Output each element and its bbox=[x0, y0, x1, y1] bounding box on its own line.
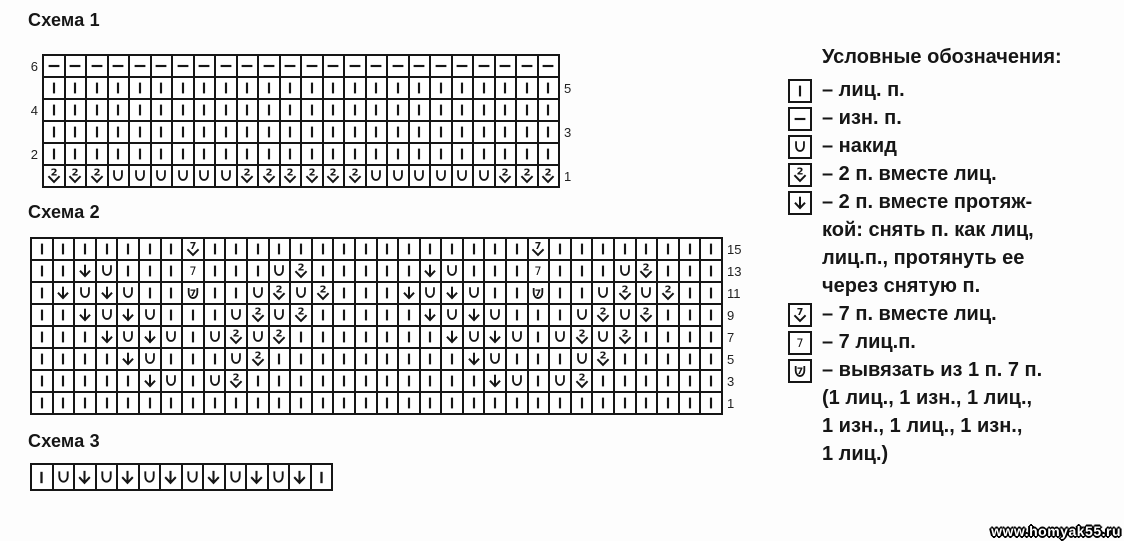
cell-k2tog: 2 bbox=[313, 283, 335, 305]
cell-knit bbox=[431, 144, 453, 166]
cell-ssk bbox=[140, 371, 162, 393]
cell-yarnover bbox=[183, 465, 205, 491]
knit-icon bbox=[206, 306, 224, 324]
cell-knit bbox=[680, 261, 702, 283]
cell-knit bbox=[496, 100, 518, 122]
knit-icon bbox=[152, 101, 170, 119]
k2tog-icon: 2 bbox=[539, 167, 557, 185]
cell-yarnover bbox=[550, 327, 572, 349]
cell-knit bbox=[281, 144, 303, 166]
ssk-symbol-box bbox=[788, 191, 812, 215]
chart-row bbox=[44, 56, 560, 78]
cell-knit bbox=[496, 144, 518, 166]
cell-yarnover bbox=[248, 283, 270, 305]
cell-yarnover bbox=[572, 349, 594, 371]
knit-icon bbox=[324, 101, 342, 119]
knit-icon bbox=[33, 372, 51, 390]
cell-ssk bbox=[421, 261, 443, 283]
yarnover-icon bbox=[249, 328, 267, 346]
cell-k2tog: 2 bbox=[324, 166, 346, 188]
yarnover-icon bbox=[195, 167, 213, 185]
yarnover-icon bbox=[443, 306, 461, 324]
cell-k2tog: 2 bbox=[87, 166, 109, 188]
cell-knit bbox=[550, 349, 572, 371]
cell-knit bbox=[313, 305, 335, 327]
cell-knit bbox=[388, 100, 410, 122]
knit-icon bbox=[378, 372, 396, 390]
knit-icon bbox=[162, 350, 180, 368]
cell-knit bbox=[637, 239, 659, 261]
cell-knit bbox=[378, 327, 400, 349]
cell-knit bbox=[118, 371, 140, 393]
cell-knit bbox=[226, 283, 248, 305]
knit-icon bbox=[54, 328, 72, 346]
knit-icon bbox=[421, 372, 439, 390]
cell-yarnover bbox=[421, 283, 443, 305]
cell-knit bbox=[421, 349, 443, 371]
knit-icon bbox=[88, 145, 106, 163]
purl-icon bbox=[195, 57, 213, 75]
knit-icon bbox=[616, 350, 634, 368]
knit-icon bbox=[195, 123, 213, 141]
knit-icon bbox=[496, 145, 514, 163]
yarnover-icon bbox=[508, 372, 526, 390]
knit-icon bbox=[54, 372, 72, 390]
knit-icon bbox=[335, 240, 353, 258]
yarnover-icon bbox=[270, 262, 288, 280]
cell-knit bbox=[291, 349, 313, 371]
k2tog-icon: 2 bbox=[66, 167, 84, 185]
cell-k2tog: 2 bbox=[637, 261, 659, 283]
row-number: 5 bbox=[564, 78, 571, 100]
knit-icon bbox=[551, 262, 569, 280]
cell-knit bbox=[442, 393, 464, 415]
knit-icon bbox=[162, 394, 180, 412]
row-number: 11 bbox=[727, 283, 741, 305]
knit-icon bbox=[539, 145, 557, 163]
cell-knit bbox=[572, 261, 594, 283]
cell-knit bbox=[66, 100, 88, 122]
cell-knit bbox=[324, 122, 346, 144]
purl-icon bbox=[131, 57, 149, 75]
cell-knit bbox=[356, 393, 378, 415]
knit-icon bbox=[573, 240, 591, 258]
cell-k2tog: 2 bbox=[658, 283, 680, 305]
cell-knit bbox=[680, 283, 702, 305]
chart-row: 7272 bbox=[32, 261, 723, 283]
cell-yarnover bbox=[291, 283, 313, 305]
knit-icon bbox=[637, 372, 655, 390]
knit-icon bbox=[346, 79, 364, 97]
ssk-icon bbox=[204, 468, 223, 487]
knit-icon bbox=[303, 101, 321, 119]
cell-k2tog: 2 bbox=[248, 305, 270, 327]
cell-yarnover bbox=[226, 465, 248, 491]
cell-knit bbox=[248, 393, 270, 415]
cell-yarnover bbox=[162, 327, 184, 349]
cell-knit bbox=[701, 349, 723, 371]
ssk-icon bbox=[290, 468, 309, 487]
cell-yarnover bbox=[453, 166, 475, 188]
cell-ssk bbox=[118, 349, 140, 371]
cell-yarnover bbox=[367, 166, 389, 188]
cell-k2tog: 2 bbox=[44, 166, 66, 188]
cell-knit bbox=[539, 144, 561, 166]
cell-knit bbox=[334, 349, 356, 371]
knit-icon bbox=[539, 123, 557, 141]
cell-knit bbox=[550, 305, 572, 327]
k2tog-icon: 2 bbox=[249, 306, 267, 324]
purl-icon bbox=[281, 57, 299, 75]
cell-ssk bbox=[97, 283, 119, 305]
cell-knit bbox=[399, 371, 421, 393]
cell-knit bbox=[378, 239, 400, 261]
cell-purl bbox=[431, 56, 453, 78]
knit-icon bbox=[378, 262, 396, 280]
knit-icon bbox=[410, 101, 428, 119]
row-number: 15 bbox=[727, 239, 741, 261]
cell-k2tog: 2 bbox=[615, 283, 637, 305]
legend-items: – лиц. п.– изн. п.– накид2– 2 п. вместе … bbox=[786, 76, 1124, 468]
row-numbers-left: 642 bbox=[24, 56, 38, 188]
cell-yarnover bbox=[130, 166, 152, 188]
knit-icon bbox=[594, 262, 612, 280]
purl-icon bbox=[152, 57, 170, 75]
cell-ssk bbox=[442, 327, 464, 349]
cell-yarnover bbox=[75, 283, 97, 305]
cell-purl bbox=[388, 56, 410, 78]
knit-icon bbox=[421, 394, 439, 412]
cell-yarnover bbox=[410, 166, 432, 188]
knit-icon bbox=[357, 284, 375, 302]
chart-row bbox=[44, 78, 560, 100]
cell-knit bbox=[205, 239, 227, 261]
k2tog-icon: 2 bbox=[518, 167, 536, 185]
knit-icon bbox=[335, 262, 353, 280]
knit-icon bbox=[141, 240, 159, 258]
purl-icon bbox=[389, 57, 407, 75]
ssk-icon bbox=[141, 328, 159, 346]
svg-text:2: 2 bbox=[545, 168, 552, 179]
cell-knit bbox=[517, 122, 539, 144]
legend-item-line: – накид bbox=[822, 132, 1124, 160]
cell-knit bbox=[680, 305, 702, 327]
cell-knit bbox=[313, 393, 335, 415]
cell-knit bbox=[474, 122, 496, 144]
cell-knit bbox=[259, 122, 281, 144]
cell-yarnover bbox=[615, 261, 637, 283]
knit-icon bbox=[453, 79, 471, 97]
knit-icon bbox=[475, 79, 493, 97]
row-number bbox=[24, 122, 38, 144]
k2tog-icon: 2 bbox=[496, 167, 514, 185]
cell-knit bbox=[87, 122, 109, 144]
knit-icon bbox=[131, 79, 149, 97]
legend-item-line: – изн. п. bbox=[822, 104, 1124, 132]
chart-row: 22 bbox=[32, 349, 723, 371]
knit-icon bbox=[324, 79, 342, 97]
cell-k2tog: 2 bbox=[281, 166, 303, 188]
knit-icon bbox=[432, 79, 450, 97]
cell-purl bbox=[216, 56, 238, 78]
k2tog-icon: 2 bbox=[637, 262, 655, 280]
row-number: 13 bbox=[727, 261, 741, 283]
cell-ssk bbox=[442, 283, 464, 305]
cell-k2tog: 2 bbox=[66, 166, 88, 188]
cell-knit bbox=[205, 349, 227, 371]
cell-knit bbox=[130, 144, 152, 166]
schema3-title: Схема 3 bbox=[28, 431, 100, 452]
knit-icon bbox=[76, 394, 94, 412]
cell-knit bbox=[195, 122, 217, 144]
cell-knit bbox=[658, 305, 680, 327]
cell-knit bbox=[162, 283, 184, 305]
cell-knit bbox=[226, 261, 248, 283]
legend-item: 7– 7 п. вместе лиц. bbox=[786, 300, 1124, 328]
cell-purl bbox=[367, 56, 389, 78]
cell-knit bbox=[378, 393, 400, 415]
ssk-icon bbox=[400, 284, 418, 302]
knit-icon bbox=[539, 101, 557, 119]
cell-yarnover bbox=[97, 465, 119, 491]
chart-row: 2222 bbox=[32, 305, 723, 327]
make7-icon: 7 bbox=[791, 362, 809, 380]
yarnover-icon bbox=[206, 372, 224, 390]
cell-k2tog: 2 bbox=[539, 166, 561, 188]
knit-icon bbox=[238, 123, 256, 141]
knit7-icon: 7 bbox=[529, 262, 547, 280]
cell-yarnover bbox=[431, 166, 453, 188]
knit-icon bbox=[109, 123, 127, 141]
cell-yarnover bbox=[109, 166, 131, 188]
svg-text:2: 2 bbox=[502, 168, 509, 179]
knit-icon bbox=[594, 372, 612, 390]
knit-icon bbox=[465, 372, 483, 390]
knit-icon bbox=[486, 262, 504, 280]
cell-knit bbox=[130, 100, 152, 122]
knit-icon bbox=[410, 79, 428, 97]
k2tog-icon: 2 bbox=[303, 167, 321, 185]
cell-knit bbox=[44, 78, 66, 100]
knit7-icon: 7 bbox=[791, 334, 809, 352]
cell-knit bbox=[378, 371, 400, 393]
cell-yarnover bbox=[637, 283, 659, 305]
knit-icon bbox=[270, 372, 288, 390]
cell-knit bbox=[109, 78, 131, 100]
knit-icon bbox=[54, 306, 72, 324]
yarnover-icon bbox=[292, 284, 310, 302]
cell-knit bbox=[464, 371, 486, 393]
knit-icon bbox=[54, 262, 72, 280]
cell-knit bbox=[226, 393, 248, 415]
cell-k2tog: 2 bbox=[593, 305, 615, 327]
yarnover-icon bbox=[465, 284, 483, 302]
cell-knit bbox=[658, 239, 680, 261]
cell-knit bbox=[334, 239, 356, 261]
knit-icon bbox=[475, 101, 493, 119]
knit-icon bbox=[453, 145, 471, 163]
cell-knit bbox=[109, 100, 131, 122]
k2tog-icon: 2 bbox=[270, 284, 288, 302]
cell-ssk bbox=[464, 349, 486, 371]
knit-icon bbox=[637, 328, 655, 346]
yarnover-icon bbox=[226, 468, 245, 487]
cell-k7tog: 7 bbox=[529, 239, 551, 261]
knit-icon bbox=[227, 240, 245, 258]
knit7-icon: 7 bbox=[184, 262, 202, 280]
chart-row bbox=[32, 465, 333, 491]
cell-knit bbox=[680, 393, 702, 415]
cell-ssk bbox=[485, 327, 507, 349]
knit-icon bbox=[400, 394, 418, 412]
knit-icon bbox=[681, 284, 699, 302]
knit-icon bbox=[238, 79, 256, 97]
knit-icon bbox=[184, 306, 202, 324]
ssk-icon bbox=[421, 306, 439, 324]
k7tog-symbol-box: 7 bbox=[788, 303, 812, 327]
cell-ssk bbox=[118, 305, 140, 327]
ssk-icon bbox=[76, 306, 94, 324]
yarnover-icon bbox=[119, 284, 137, 302]
purl-icon bbox=[367, 57, 385, 75]
schema2-chart: 77727272272222222222222215131197531 bbox=[30, 237, 741, 415]
knit-icon bbox=[33, 328, 51, 346]
cell-k2tog: 2 bbox=[270, 327, 292, 349]
knit-icon bbox=[335, 328, 353, 346]
watermark-url: www.homyak55.ru bbox=[991, 523, 1121, 539]
knit-icon bbox=[109, 145, 127, 163]
knit-icon bbox=[281, 79, 299, 97]
purl-icon bbox=[518, 57, 536, 75]
knit-icon bbox=[303, 145, 321, 163]
cell-knit bbox=[474, 100, 496, 122]
row-number bbox=[24, 78, 38, 100]
knit-icon bbox=[378, 240, 396, 258]
yarnover-icon bbox=[410, 167, 428, 185]
cell-knit bbox=[32, 239, 54, 261]
cell-knit bbox=[183, 305, 205, 327]
k2tog-icon: 2 bbox=[88, 167, 106, 185]
yarnover-icon bbox=[270, 306, 288, 324]
knit-icon bbox=[314, 328, 332, 346]
cell-knit bbox=[658, 327, 680, 349]
cell-knit bbox=[162, 305, 184, 327]
yarnover-icon bbox=[162, 328, 180, 346]
cell-ssk bbox=[421, 305, 443, 327]
cell-knit bbox=[529, 371, 551, 393]
knit-icon bbox=[324, 145, 342, 163]
cell-knit bbox=[313, 239, 335, 261]
knit-icon bbox=[45, 101, 63, 119]
knit-icon bbox=[378, 328, 396, 346]
cell-knit bbox=[270, 239, 292, 261]
cell-knit bbox=[162, 349, 184, 371]
cell-knit bbox=[334, 327, 356, 349]
row-number bbox=[564, 56, 571, 78]
cell-knit bbox=[226, 239, 248, 261]
knit-icon bbox=[131, 101, 149, 119]
cell-knit bbox=[302, 122, 324, 144]
knit-symbol-box bbox=[788, 79, 812, 103]
legend-item-line: 1 изн., 1 лиц., 1 изн., bbox=[822, 412, 1124, 440]
yarnover-icon bbox=[54, 468, 73, 487]
knit-icon bbox=[508, 240, 526, 258]
yarnover-icon bbox=[152, 167, 170, 185]
knit-icon bbox=[66, 145, 84, 163]
knit7-symbol-box: 7 bbox=[788, 331, 812, 355]
cell-knit bbox=[701, 371, 723, 393]
cell-k2tog: 2 bbox=[238, 166, 260, 188]
knit-icon bbox=[551, 284, 569, 302]
knit-icon bbox=[66, 79, 84, 97]
k2tog-icon: 2 bbox=[346, 167, 364, 185]
cell-yarnover bbox=[205, 371, 227, 393]
cell-knit bbox=[485, 393, 507, 415]
yarnover-icon bbox=[486, 306, 504, 324]
cell-knit bbox=[195, 78, 217, 100]
knit-icon bbox=[702, 262, 720, 280]
knit-icon bbox=[702, 284, 720, 302]
row-number: 1 bbox=[727, 393, 741, 415]
knit-icon bbox=[432, 145, 450, 163]
knit-icon bbox=[260, 101, 278, 119]
cell-knit bbox=[453, 78, 475, 100]
knit-icon bbox=[389, 145, 407, 163]
yarnover-icon bbox=[183, 468, 202, 487]
cell-knit bbox=[431, 78, 453, 100]
purl-icon bbox=[475, 57, 493, 75]
cell-knit bbox=[615, 371, 637, 393]
cell-purl bbox=[87, 56, 109, 78]
cell-yarnover bbox=[140, 305, 162, 327]
cell-k2tog: 2 bbox=[615, 327, 637, 349]
schema1-chart: 642222222222222531 bbox=[24, 54, 571, 188]
knit-icon bbox=[249, 394, 267, 412]
cell-yarnover bbox=[593, 327, 615, 349]
cell-make7: 7 bbox=[183, 283, 205, 305]
cell-knit bbox=[130, 122, 152, 144]
cell-knit bbox=[485, 239, 507, 261]
knit-icon bbox=[702, 240, 720, 258]
yarnover-icon bbox=[465, 328, 483, 346]
purl-icon bbox=[432, 57, 450, 75]
cell-knit bbox=[75, 327, 97, 349]
cell-knit bbox=[32, 327, 54, 349]
cell-knit bbox=[637, 371, 659, 393]
ssk-icon bbox=[98, 284, 116, 302]
cell-knit bbox=[130, 78, 152, 100]
knit-icon bbox=[162, 306, 180, 324]
knit-icon bbox=[270, 240, 288, 258]
cell-knit bbox=[291, 393, 313, 415]
knit-icon bbox=[54, 240, 72, 258]
cell-knit bbox=[593, 261, 615, 283]
knit-icon bbox=[453, 101, 471, 119]
knit-icon bbox=[681, 372, 699, 390]
row-number bbox=[564, 100, 571, 122]
chart-row: 77 bbox=[32, 239, 723, 261]
cell-k2tog: 2 bbox=[248, 349, 270, 371]
cell-ssk bbox=[247, 465, 269, 491]
yarnover-icon bbox=[217, 167, 235, 185]
knit-icon bbox=[410, 145, 428, 163]
knit-icon bbox=[45, 79, 63, 97]
ssk-icon bbox=[98, 328, 116, 346]
cell-knit bbox=[118, 393, 140, 415]
cell-knit bbox=[183, 349, 205, 371]
k2tog-icon: 2 bbox=[281, 167, 299, 185]
cell-purl bbox=[324, 56, 346, 78]
